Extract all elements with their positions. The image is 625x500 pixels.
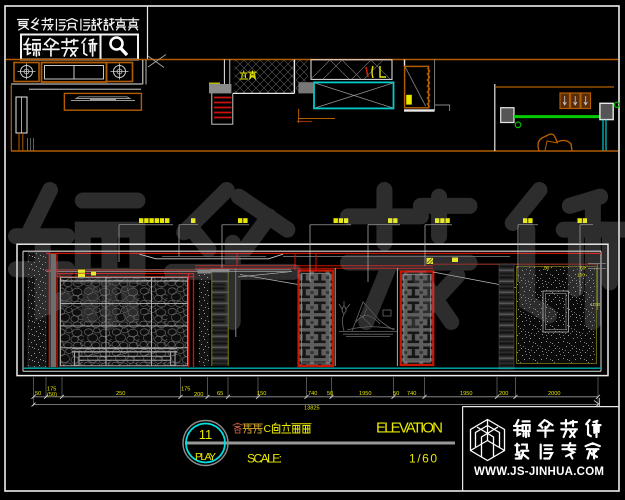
svg-text:C: C — [264, 423, 272, 435]
svg-text:50: 50 — [393, 391, 399, 397]
svg-text:1/60: 1/60 — [409, 452, 437, 466]
svg-text:SCALE:: SCALE: — [247, 452, 282, 466]
svg-text:1950: 1950 — [359, 391, 371, 397]
svg-text:250: 250 — [116, 391, 125, 397]
svg-text:50: 50 — [35, 391, 41, 397]
svg-text:WWW.JS-JINHUA.COM: WWW.JS-JINHUA.COM — [474, 466, 604, 478]
svg-text:13825: 13825 — [304, 406, 320, 412]
svg-text:11: 11 — [199, 427, 213, 442]
svg-text:740: 740 — [407, 391, 416, 397]
svg-text:2000: 2000 — [548, 391, 560, 397]
svg-text:50: 50 — [327, 391, 333, 397]
svg-text:200: 200 — [194, 392, 203, 398]
svg-text:50: 50 — [544, 266, 550, 272]
svg-text:740: 740 — [308, 391, 317, 397]
svg-text:1950: 1950 — [460, 391, 472, 397]
svg-text:(50): (50) — [47, 392, 57, 398]
svg-text:150: 150 — [257, 391, 266, 397]
svg-text:PLAY: PLAY — [195, 451, 216, 463]
svg-text:175: 175 — [181, 387, 190, 393]
svg-text:ELEVATION: ELEVATION — [376, 420, 443, 437]
svg-text:65: 65 — [217, 391, 223, 397]
svg-text:200: 200 — [499, 391, 508, 397]
